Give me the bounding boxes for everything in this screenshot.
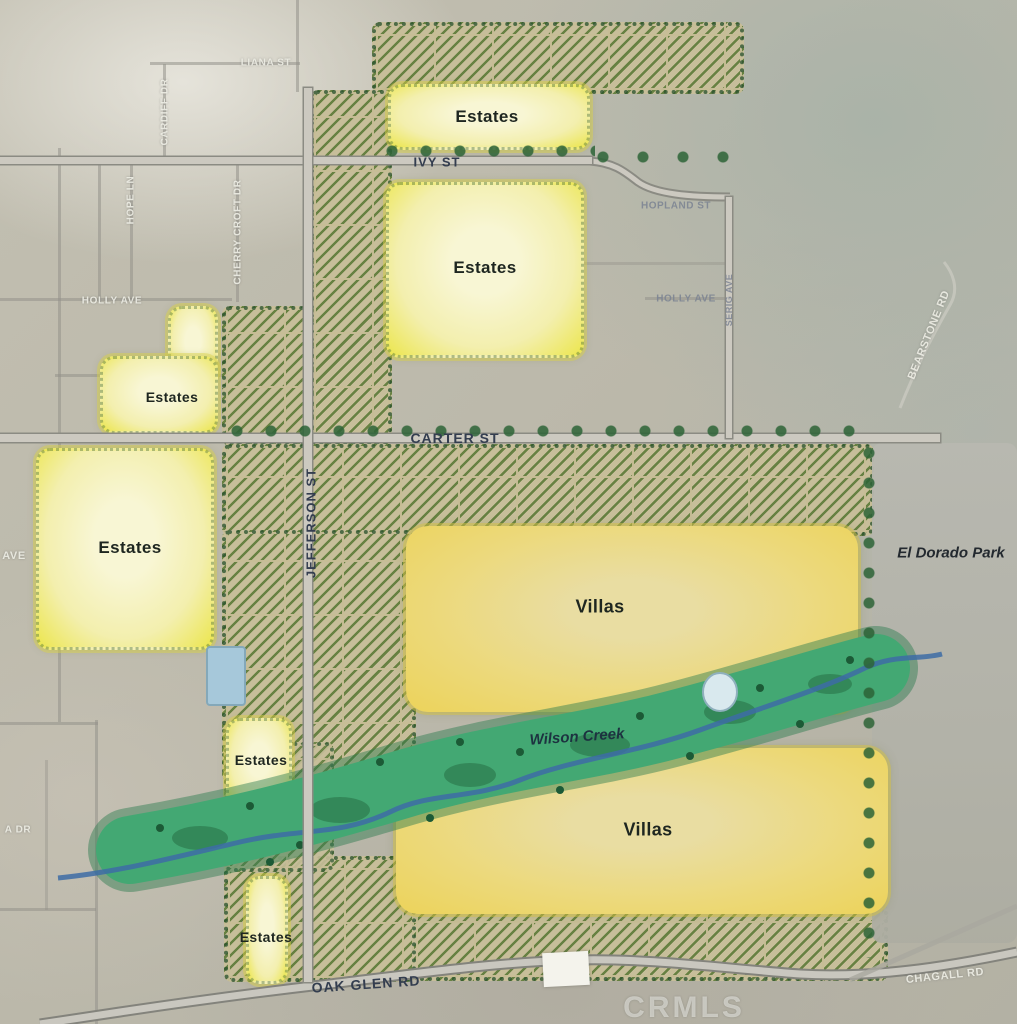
street-label-bearstone: BEARSTONE RD <box>906 289 953 382</box>
ivy-east-tree-row <box>596 150 736 164</box>
white-building <box>542 951 590 987</box>
bg-road-sw-3 <box>0 722 98 725</box>
zone-label-estates-south: Estates <box>240 929 293 945</box>
place-label-el-dorado-park: El Dorado Park <box>897 545 1005 562</box>
bg-road-north-stub <box>296 0 299 92</box>
zone-label-estates-west: Estates <box>98 538 161 558</box>
street-label-cherry-croft: CHERRY CROFT DR <box>233 179 244 284</box>
street-label-chagall: CHAGALL RD <box>905 966 984 986</box>
ivy-curve-road <box>590 161 730 197</box>
ivy-curve-road-outline <box>590 161 730 197</box>
bg-road-sw-5 <box>45 760 48 910</box>
bg-road-sw-2 <box>95 720 98 1024</box>
bg-road-west-1 <box>58 148 61 440</box>
park-boundary-tree-line <box>863 446 875 958</box>
zone-label-villas-south: Villas <box>623 820 672 841</box>
crmls-watermark: CRMLS <box>623 991 745 1024</box>
street-label-holly-east: HOLLY AVE <box>656 294 716 305</box>
zone-label-estates-west-upper: Estates <box>146 389 199 405</box>
zone-label-villas-north: Villas <box>575 597 624 618</box>
site-plan-map: Estates Estates Estates Estates Estates … <box>0 0 1017 1024</box>
zone-label-estates-creek: Estates <box>235 752 288 768</box>
street-label-jefferson: JEFFERSON ST <box>304 468 319 578</box>
orchard-block <box>412 903 888 981</box>
bg-road-sw-4 <box>0 908 96 911</box>
ivy-street-road <box>0 157 592 164</box>
street-label-liana: LIANA ST <box>241 58 292 69</box>
street-label-hope: HOPE LN <box>126 176 137 225</box>
bg-road-stub-east <box>582 262 728 265</box>
zone-label-estates-north: Estates <box>453 258 516 278</box>
orchard-block <box>310 90 392 446</box>
street-label-cardiff: CARDIFF DR <box>160 78 171 145</box>
street-label-a-dr-fragment: A DR <box>5 825 31 836</box>
street-label-carter: CARTER ST <box>410 430 499 446</box>
orchard-block <box>222 444 874 536</box>
carter-street-tree-row <box>230 424 870 438</box>
zone-label-estates-top: Estates <box>455 107 518 127</box>
street-label-ivy: IVY ST <box>414 155 461 170</box>
street-label-ave-fragment: AVE <box>2 550 26 562</box>
bg-road-west-2 <box>98 160 101 302</box>
street-label-hopland: HOPLAND ST <box>641 201 711 212</box>
street-label-holly-west: HOLLY AVE <box>82 296 142 307</box>
el-dorado-park-area <box>872 443 1017 943</box>
irrigation-pond <box>206 646 246 706</box>
place-label-wilson-creek: Wilson Creek <box>529 725 625 749</box>
street-label-serig: SERIG AVE <box>724 274 734 327</box>
villas-zone-north <box>406 526 858 712</box>
